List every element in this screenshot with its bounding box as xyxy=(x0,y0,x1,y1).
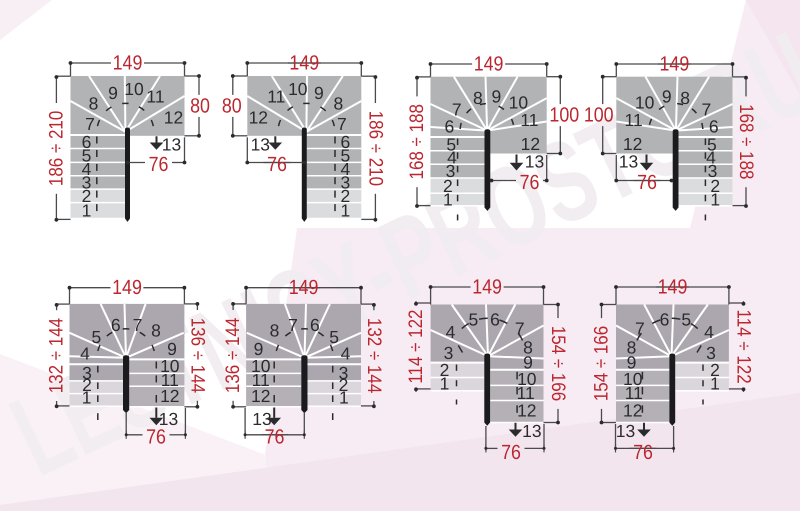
svg-text:13: 13 xyxy=(619,152,638,172)
svg-text:168 ÷ 188: 168 ÷ 188 xyxy=(406,104,428,179)
svg-text:114 ÷ 122: 114 ÷ 122 xyxy=(733,310,755,384)
svg-text:8: 8 xyxy=(680,88,690,108)
svg-text:76: 76 xyxy=(149,153,169,176)
svg-text:6: 6 xyxy=(660,310,670,330)
svg-text:149: 149 xyxy=(660,53,690,76)
svg-text:76: 76 xyxy=(267,153,287,176)
svg-text:9: 9 xyxy=(108,83,118,103)
svg-text:8: 8 xyxy=(89,94,99,114)
svg-text:5: 5 xyxy=(468,310,478,330)
svg-text:13: 13 xyxy=(159,409,178,429)
svg-text:149: 149 xyxy=(658,276,688,299)
svg-text:76: 76 xyxy=(520,171,540,194)
svg-text:12: 12 xyxy=(623,401,642,421)
svg-text:149: 149 xyxy=(113,52,143,75)
svg-text:4: 4 xyxy=(704,322,714,342)
svg-text:114 ÷ 122: 114 ÷ 122 xyxy=(405,310,427,384)
svg-text:13: 13 xyxy=(162,135,181,155)
svg-text:149: 149 xyxy=(474,53,504,76)
svg-text:4: 4 xyxy=(446,322,456,342)
svg-text:10: 10 xyxy=(288,79,308,99)
svg-text:149: 149 xyxy=(112,276,142,299)
svg-text:8: 8 xyxy=(333,94,343,114)
svg-text:76: 76 xyxy=(633,441,653,464)
svg-text:100: 100 xyxy=(584,104,614,127)
svg-text:132 ÷ 144: 132 ÷ 144 xyxy=(363,318,385,393)
svg-text:12: 12 xyxy=(517,401,536,421)
svg-text:12: 12 xyxy=(160,386,179,406)
svg-text:12: 12 xyxy=(249,108,268,128)
svg-text:154 ÷ 166: 154 ÷ 166 xyxy=(591,326,613,401)
svg-text:5: 5 xyxy=(329,327,339,347)
svg-text:76: 76 xyxy=(501,441,521,464)
svg-text:13: 13 xyxy=(616,421,635,441)
svg-text:136 ÷ 144: 136 ÷ 144 xyxy=(222,318,244,393)
svg-text:13: 13 xyxy=(252,409,271,429)
svg-text:80: 80 xyxy=(222,94,242,117)
svg-text:13: 13 xyxy=(522,421,541,441)
svg-text:7: 7 xyxy=(701,100,711,120)
svg-text:1: 1 xyxy=(443,190,453,210)
svg-text:6: 6 xyxy=(310,315,320,335)
svg-text:1: 1 xyxy=(440,373,450,393)
svg-text:4: 4 xyxy=(80,344,90,364)
svg-text:11: 11 xyxy=(146,87,164,107)
svg-text:154 ÷ 166: 154 ÷ 166 xyxy=(547,326,569,401)
svg-text:5: 5 xyxy=(92,327,102,347)
svg-text:12: 12 xyxy=(164,108,183,128)
svg-text:149: 149 xyxy=(472,276,502,299)
svg-text:1: 1 xyxy=(339,387,349,407)
svg-text:1: 1 xyxy=(82,201,92,221)
svg-text:80: 80 xyxy=(190,94,210,117)
svg-text:7: 7 xyxy=(133,315,143,335)
svg-text:6: 6 xyxy=(490,310,500,330)
svg-text:13: 13 xyxy=(251,135,270,155)
svg-text:12: 12 xyxy=(251,386,270,406)
svg-text:1: 1 xyxy=(710,373,720,393)
svg-text:9: 9 xyxy=(491,86,501,106)
svg-text:8: 8 xyxy=(270,321,280,341)
svg-text:8: 8 xyxy=(151,321,161,341)
svg-text:5: 5 xyxy=(681,310,691,330)
svg-text:9: 9 xyxy=(662,86,672,106)
svg-text:100: 100 xyxy=(549,104,579,127)
svg-text:7: 7 xyxy=(515,319,525,339)
svg-text:7: 7 xyxy=(337,114,347,134)
svg-text:11: 11 xyxy=(520,110,538,130)
svg-text:186 ÷ 210: 186 ÷ 210 xyxy=(364,111,386,186)
svg-text:186 ÷ 210: 186 ÷ 210 xyxy=(45,111,67,186)
svg-text:136 ÷ 144: 136 ÷ 144 xyxy=(186,318,208,393)
svg-text:7: 7 xyxy=(452,100,462,120)
svg-text:6: 6 xyxy=(111,315,121,335)
svg-text:1: 1 xyxy=(710,190,720,210)
svg-text:149: 149 xyxy=(289,276,319,299)
svg-text:7: 7 xyxy=(85,114,95,134)
svg-text:76: 76 xyxy=(637,171,657,194)
svg-text:7: 7 xyxy=(288,315,298,335)
svg-text:4: 4 xyxy=(341,344,351,364)
svg-text:13: 13 xyxy=(525,152,544,172)
svg-text:149: 149 xyxy=(289,52,319,75)
svg-text:1: 1 xyxy=(340,201,350,221)
svg-text:11: 11 xyxy=(267,87,285,107)
svg-text:10: 10 xyxy=(124,79,144,99)
svg-text:11: 11 xyxy=(625,110,643,130)
svg-text:1: 1 xyxy=(82,387,92,407)
svg-text:132 ÷ 144: 132 ÷ 144 xyxy=(46,318,68,393)
svg-text:168 ÷ 188: 168 ÷ 188 xyxy=(735,104,757,179)
svg-text:7: 7 xyxy=(635,319,645,339)
svg-text:9: 9 xyxy=(314,83,324,103)
svg-text:8: 8 xyxy=(473,88,483,108)
